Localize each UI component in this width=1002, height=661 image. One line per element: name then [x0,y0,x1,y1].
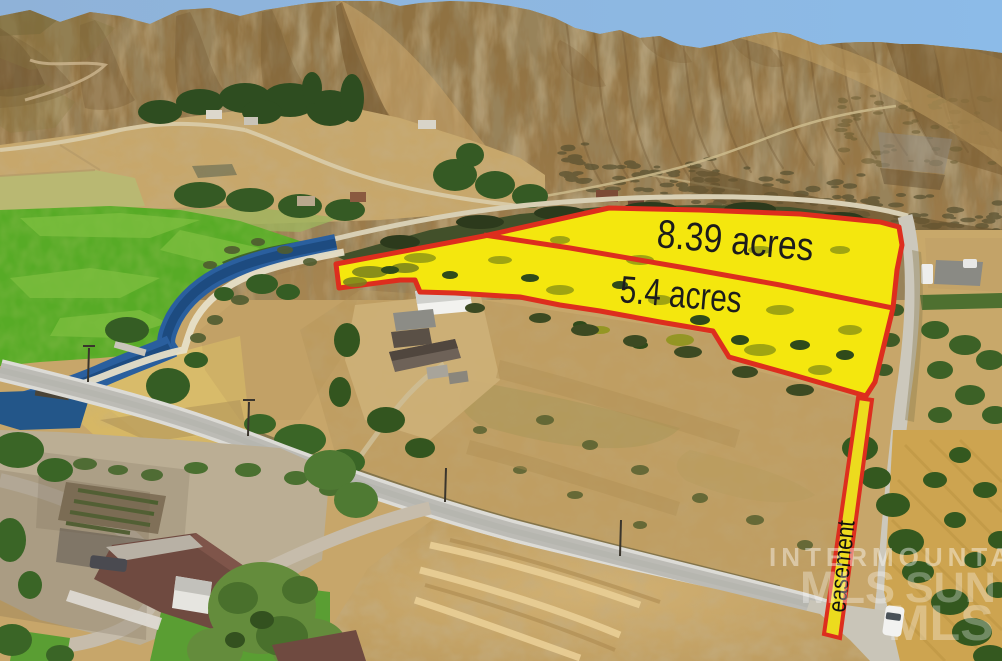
svg-text:MLS: MLS [888,595,994,651]
svg-text:MLS: MLS [800,562,895,613]
